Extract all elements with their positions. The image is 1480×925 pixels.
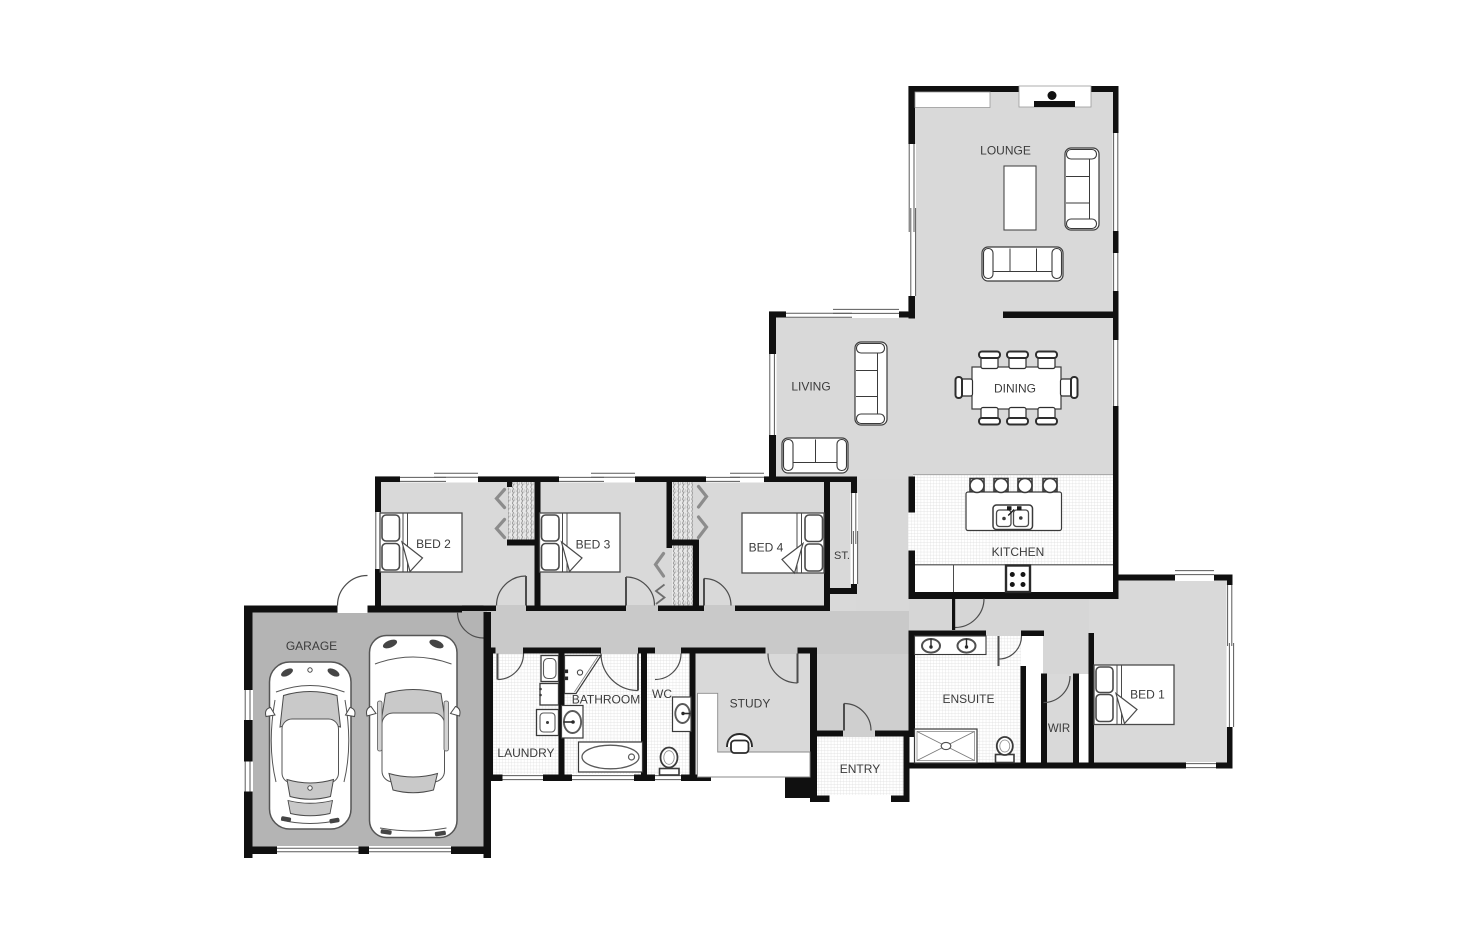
- svg-text:ST.: ST.: [834, 550, 850, 562]
- svg-text:WIR: WIR: [1048, 723, 1070, 735]
- svg-text:STUDY: STUDY: [730, 697, 771, 711]
- svg-text:GARAGE: GARAGE: [286, 639, 337, 653]
- svg-text:LAUNDRY: LAUNDRY: [497, 746, 554, 760]
- svg-text:LOUNGE: LOUNGE: [980, 144, 1031, 158]
- svg-text:KITCHEN: KITCHEN: [992, 545, 1045, 559]
- svg-text:ENSUITE: ENSUITE: [942, 692, 994, 706]
- svg-text:WC: WC: [652, 687, 672, 701]
- svg-text:BED 3: BED 3: [576, 538, 611, 552]
- svg-text:DINING: DINING: [994, 382, 1036, 396]
- svg-text:BED 1: BED 1: [1130, 688, 1165, 702]
- svg-text:LIVING: LIVING: [791, 380, 830, 394]
- svg-text:BED 2: BED 2: [416, 537, 451, 551]
- svg-text:ENTRY: ENTRY: [840, 762, 880, 776]
- svg-text:BED 4: BED 4: [749, 541, 784, 555]
- svg-text:BATHROOM: BATHROOM: [572, 693, 640, 707]
